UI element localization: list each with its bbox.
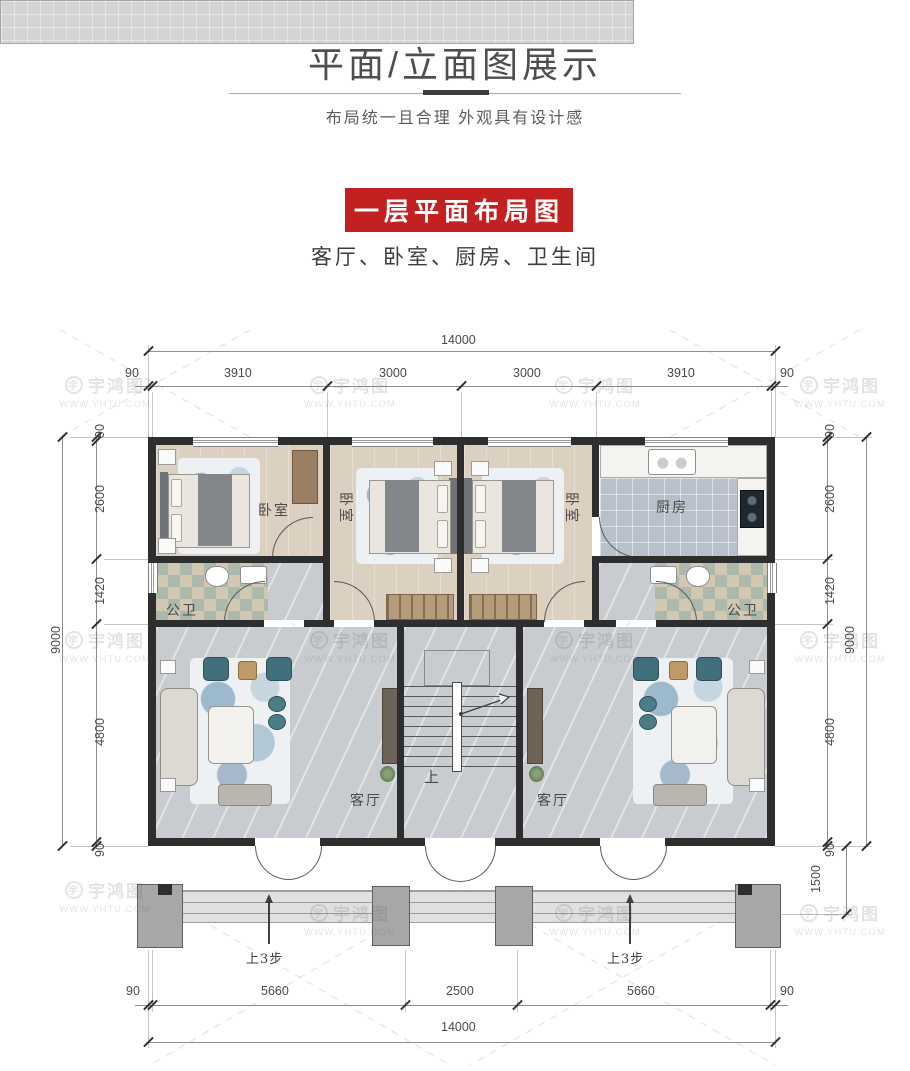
window-top-bedroom1 — [193, 437, 278, 447]
rooms-list-line: 客厅、卧室、厨房、卫生间 — [0, 241, 910, 271]
dim-top-seg: 90 — [125, 366, 139, 380]
dim-line-porch — [846, 846, 847, 914]
living-left-door-arc — [255, 846, 289, 880]
bath-left-toilet — [205, 566, 229, 587]
wall-top — [278, 437, 352, 445]
watermark: 宇宇鸿图 WWW.YHTU.COM — [774, 627, 906, 665]
wall-under-kitchen — [592, 556, 775, 563]
bedroom2-nightstand — [434, 558, 452, 573]
living-right-sofa — [727, 688, 765, 786]
title-divider-accent — [423, 90, 489, 95]
dim-line-right-total — [866, 437, 867, 846]
wall-stairwell-right — [516, 627, 523, 846]
living-left-speaker — [160, 660, 176, 674]
living-left-tv-cabinet — [382, 688, 398, 764]
living-left-armchair — [266, 657, 292, 681]
living-right-coffee-table — [671, 706, 717, 764]
dim-right-total: 9000 — [843, 608, 857, 672]
living-right-door-arc — [600, 846, 634, 880]
bedroom1-pillow — [171, 479, 182, 507]
living-right-ottoman — [639, 714, 657, 730]
dim-right-seg: 90 — [823, 399, 837, 463]
living-right-speaker — [749, 778, 765, 792]
steps-note-left: 上3步 — [246, 948, 283, 967]
wall-bedroom3-kitchen — [592, 437, 599, 517]
watermark-logo-icon: 宇 — [65, 376, 83, 394]
kitchen-sink — [648, 449, 696, 475]
bedroom2-pillow — [437, 485, 448, 513]
bedroom3-nightstand — [471, 461, 489, 476]
stair-direction-arrow — [455, 688, 519, 722]
wall-stub-right — [738, 884, 752, 895]
wall-left — [148, 437, 156, 563]
stairs-up-label: 上 — [424, 766, 441, 787]
living-right-side-table — [669, 661, 688, 680]
bath-right-toilet — [686, 566, 710, 587]
dim-top-total: 14000 — [441, 333, 476, 347]
bedroom3-pillow — [475, 485, 486, 513]
steps-arrow-right — [629, 902, 631, 944]
kitchen-label: 厨房 — [656, 497, 688, 517]
living-right-bench — [653, 784, 707, 806]
living-right-armchair — [633, 657, 659, 681]
living-right-armchair — [696, 657, 722, 681]
dim-porch-depth: 1500 — [809, 847, 823, 911]
dim-top-seg: 3000 — [513, 366, 541, 380]
dim-right-seg: 2600 — [823, 467, 837, 531]
living-right-ottoman — [639, 696, 657, 712]
living-left-plant — [380, 766, 395, 782]
steps-arrow-left — [268, 902, 270, 944]
bedroom3-nightstand — [471, 558, 489, 573]
living-left-label: 客厅 — [350, 790, 382, 810]
bedroom2-pillow — [437, 520, 448, 548]
wall-hall — [304, 620, 334, 627]
steps-note-right: 上3步 — [607, 948, 644, 967]
dim-bottom-total: 14000 — [441, 1020, 476, 1034]
wall-bottom — [320, 838, 425, 846]
dim-bottom-seg: 5660 — [261, 984, 289, 998]
dim-right-seg: 4800 — [823, 700, 837, 764]
living-right-speaker — [749, 660, 765, 674]
living-left-armchair — [203, 657, 229, 681]
dim-line-bottom-total — [148, 1042, 775, 1043]
dim-left-total: 9000 — [49, 608, 63, 672]
wall-top — [571, 437, 645, 445]
bedroom3-wardrobe — [469, 594, 537, 620]
living-right-door-arc — [633, 846, 667, 880]
wall-stub-left — [158, 884, 172, 895]
wall-stairwell-left — [397, 627, 404, 846]
window-top-bedroom2 — [352, 437, 433, 447]
wall-center — [457, 437, 464, 627]
bedroom1-bed-headboard — [160, 472, 168, 548]
living-left-ottoman — [268, 714, 286, 730]
window-top-kitchen — [645, 437, 728, 447]
page-subtitle: 布局统一且合理 外观具有设计感 — [0, 104, 910, 128]
bath-right-label: 公卫 — [727, 600, 759, 620]
bedroom1-nightstand — [158, 538, 176, 554]
dim-left-seg: 4800 — [93, 700, 107, 764]
kitchen-stove — [740, 490, 764, 528]
bedroom3-bed-blanket — [502, 480, 536, 552]
bath-left-label: 公卫 — [166, 600, 198, 620]
wall-bottom — [665, 838, 775, 846]
porch-steps — [150, 890, 775, 923]
living-left-bench — [218, 784, 272, 806]
window-right-bath — [767, 563, 777, 593]
wall-hall — [584, 620, 616, 627]
window-top-bedroom3 — [488, 437, 571, 447]
entry-door-arc — [425, 846, 461, 882]
wall-right — [767, 593, 775, 846]
wall-bottom — [148, 838, 255, 846]
wall-bedroom3-kitchen — [592, 557, 599, 627]
wall-right — [767, 437, 775, 563]
dim-left-seg: 90 — [93, 399, 107, 463]
living-right-tv-cabinet — [527, 688, 543, 764]
watermark: 宇宇鸿图 WWW.YHTU.COM — [774, 900, 906, 938]
steps-arrowhead-left — [265, 894, 273, 903]
dim-bottom-seg: 90 — [780, 984, 794, 998]
bedroom1-label: 卧室 — [258, 500, 290, 520]
living-left-coffee-table — [208, 706, 254, 764]
dim-bottom-seg: 2500 — [446, 984, 474, 998]
wall-under-bath-right — [656, 620, 775, 627]
watermark: 宇宇鸿图 WWW.YHTU.COM — [529, 372, 661, 410]
bedroom3-pillow — [475, 520, 486, 548]
dim-top-seg: 90 — [780, 366, 794, 380]
dim-right-seg: 1420 — [823, 559, 837, 623]
porch-column-midleft — [372, 886, 410, 946]
living-left-sofa — [160, 688, 198, 786]
porch-column-midright — [495, 886, 533, 946]
bedroom1-bed-blanket — [198, 474, 232, 546]
wall-under-bedroom1 — [148, 556, 323, 563]
living-left-door-arc — [288, 846, 322, 880]
dim-left-seg: 90 — [93, 818, 107, 882]
dim-top-seg: 3910 — [224, 366, 252, 380]
living-right-plant — [529, 766, 544, 782]
entry-door-arc — [460, 846, 496, 882]
bedroom2-wardrobe — [386, 594, 454, 620]
wall-under-bedrooms — [374, 620, 544, 627]
window-left-bath — [148, 563, 158, 593]
bedroom1-dresser — [292, 450, 318, 504]
page: { "header": { "title": "平面/立面图展示", "subt… — [0, 0, 910, 1071]
dim-left-seg: 2600 — [93, 467, 107, 531]
bedroom3-label: 卧室 — [562, 492, 582, 524]
dim-bottom-seg: 5660 — [627, 984, 655, 998]
section-banner: 一层平面布局图 — [345, 188, 573, 232]
dim-bottom-seg: 90 — [126, 984, 140, 998]
dim-left-seg: 1420 — [93, 559, 107, 623]
wall-left — [148, 593, 156, 846]
living-left-ottoman — [268, 696, 286, 712]
bedroom2-nightstand — [434, 461, 452, 476]
stair-landing-outline — [424, 650, 490, 686]
steps-arrowhead-right — [626, 894, 634, 903]
wall-under-bath-left — [148, 620, 264, 627]
dim-top-seg: 3000 — [379, 366, 407, 380]
dim-top-seg: 3910 — [667, 366, 695, 380]
living-right-label: 客厅 — [537, 790, 569, 810]
living-left-side-table — [238, 661, 257, 680]
bedroom2-bed-blanket — [385, 480, 419, 552]
dim-right-seg: 90 — [823, 818, 837, 882]
page-title: 平面/立面图展示 — [0, 36, 910, 88]
bedroom1-nightstand — [158, 449, 176, 465]
wall-bottom — [495, 838, 600, 846]
dim-line-top-total — [148, 351, 775, 352]
living-left-speaker — [160, 778, 176, 792]
wall-bedroom1-bedroom2 — [323, 437, 330, 627]
bedroom2-label: 卧室 — [336, 492, 356, 524]
bedroom3-bed-headboard — [464, 478, 472, 554]
dim-line-bottom-seg — [135, 1005, 788, 1006]
